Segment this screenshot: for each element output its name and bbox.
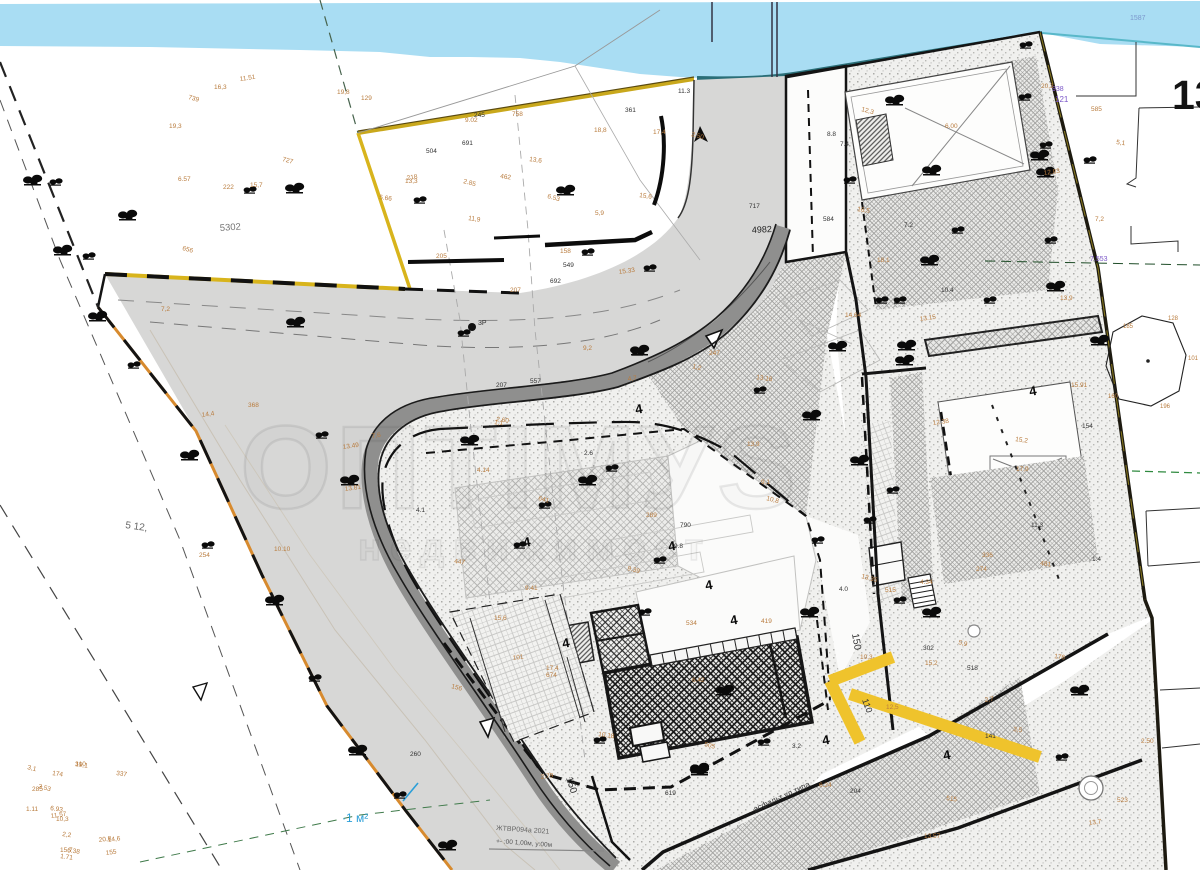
svg-text:101: 101 xyxy=(1188,356,1199,362)
svg-text:254: 254 xyxy=(199,552,210,559)
svg-text:1.4: 1.4 xyxy=(1092,556,1101,563)
svg-text:15,7: 15,7 xyxy=(250,182,263,189)
svg-text:4.14: 4.14 xyxy=(477,467,490,474)
svg-text:13,9: 13,9 xyxy=(1060,295,1073,302)
svg-text:5,1: 5,1 xyxy=(1116,139,1126,147)
svg-text:ОПТІМУЅ: ОПТІМУЅ xyxy=(240,402,800,534)
svg-text:160: 160 xyxy=(1108,394,1119,400)
svg-text:518: 518 xyxy=(967,665,978,672)
svg-text:549: 549 xyxy=(563,262,574,269)
svg-text:17,4: 17,4 xyxy=(653,129,666,136)
svg-text:15,6: 15,6 xyxy=(494,615,507,622)
svg-text:9,1: 9,1 xyxy=(761,479,770,486)
svg-text:128: 128 xyxy=(1168,316,1179,322)
svg-text:419: 419 xyxy=(761,618,772,625)
svg-text:310: 310 xyxy=(75,761,86,768)
svg-text:274: 274 xyxy=(976,566,987,573)
svg-text:1.11: 1.11 xyxy=(26,806,39,813)
svg-text:3.2: 3.2 xyxy=(792,743,801,750)
svg-text:8.8: 8.8 xyxy=(827,131,836,138)
svg-text:13.57: 13.57 xyxy=(924,833,941,840)
svg-text:7.2: 7.2 xyxy=(904,222,913,229)
svg-text:18,8: 18,8 xyxy=(594,127,607,134)
svg-text:15,7: 15,7 xyxy=(60,847,73,854)
svg-text:7,2: 7,2 xyxy=(1095,216,1104,223)
svg-text:504: 504 xyxy=(426,148,437,155)
svg-text:674: 674 xyxy=(546,672,557,679)
svg-text:2.6: 2.6 xyxy=(584,450,593,457)
svg-text:141: 141 xyxy=(985,733,996,740)
svg-text:9.41: 9.41 xyxy=(525,585,538,592)
svg-text:4.0: 4.0 xyxy=(839,586,848,593)
svg-text:129: 129 xyxy=(361,95,372,102)
svg-text:3P: 3P xyxy=(478,320,487,327)
svg-text:17,4: 17,4 xyxy=(546,665,559,672)
svg-text:207: 207 xyxy=(510,287,521,294)
svg-text:185: 185 xyxy=(1123,324,1134,330)
svg-text:361: 361 xyxy=(625,107,636,114)
svg-text:10.10: 10.10 xyxy=(274,546,291,553)
svg-text:205: 205 xyxy=(436,253,447,260)
svg-text:154: 154 xyxy=(1082,423,1093,430)
svg-text:7.553: 7.553 xyxy=(1090,256,1108,263)
svg-text:6.57: 6.57 xyxy=(178,176,191,183)
svg-text:692: 692 xyxy=(550,278,561,285)
svg-text:12,5: 12,5 xyxy=(886,704,899,711)
svg-text:15,2: 15,2 xyxy=(925,660,938,667)
svg-text:4982: 4982 xyxy=(752,224,773,235)
svg-text:534: 534 xyxy=(686,620,697,627)
svg-text:9.8: 9.8 xyxy=(674,543,683,550)
svg-text:758: 758 xyxy=(512,111,523,118)
svg-text:5,9: 5,9 xyxy=(595,210,604,217)
svg-text:302: 302 xyxy=(923,645,934,652)
svg-text:691: 691 xyxy=(462,140,473,147)
svg-text:13: 13 xyxy=(1172,72,1200,118)
svg-text:336: 336 xyxy=(982,552,993,559)
svg-text:790: 790 xyxy=(680,522,691,529)
svg-text:11.3: 11.3 xyxy=(1031,522,1044,529)
svg-text:13,9: 13,9 xyxy=(747,441,760,448)
svg-text:2.50: 2.50 xyxy=(1141,738,1154,745)
svg-text:11.3: 11.3 xyxy=(678,88,691,95)
svg-text:121: 121 xyxy=(1055,95,1069,104)
svg-text:6.42: 6.42 xyxy=(692,677,705,684)
svg-text:4.34: 4.34 xyxy=(920,579,933,586)
svg-text:19,8: 19,8 xyxy=(337,89,350,96)
svg-text:19,3: 19,3 xyxy=(169,123,182,130)
svg-text:6.24: 6.24 xyxy=(819,782,832,789)
svg-text:260: 260 xyxy=(410,751,421,758)
svg-text:619: 619 xyxy=(665,790,676,797)
svg-text:245: 245 xyxy=(474,112,485,119)
svg-text:207: 207 xyxy=(496,382,507,389)
svg-text:938: 938 xyxy=(1052,86,1064,93)
svg-text:10,3: 10,3 xyxy=(860,654,873,661)
svg-text:515: 515 xyxy=(885,587,896,594)
svg-text:15.91: 15.91 xyxy=(1071,382,1088,389)
svg-text:585: 585 xyxy=(1091,106,1102,113)
svg-text:204: 204 xyxy=(850,788,861,795)
svg-text:10,3: 10,3 xyxy=(56,816,69,823)
svg-text:16,3: 16,3 xyxy=(214,84,227,91)
svg-text:1587: 1587 xyxy=(1130,15,1146,22)
svg-text:584: 584 xyxy=(823,216,834,223)
svg-text:9,2: 9,2 xyxy=(583,345,592,352)
svg-text:247: 247 xyxy=(709,350,720,357)
svg-text:20,3: 20,3 xyxy=(1041,83,1054,90)
svg-text:289: 289 xyxy=(646,512,657,519)
svg-text:4,7: 4,7 xyxy=(627,375,637,383)
svg-text:6.00: 6.00 xyxy=(945,123,958,130)
svg-text:5302: 5302 xyxy=(219,222,241,234)
svg-text:523: 523 xyxy=(1117,797,1128,804)
svg-text:368: 368 xyxy=(248,402,259,409)
svg-text:10.4: 10.4 xyxy=(941,287,954,294)
svg-text:·1 м²: ·1 м² xyxy=(342,811,368,825)
svg-text:196: 196 xyxy=(1160,404,1171,410)
svg-text:158: 158 xyxy=(560,248,571,255)
svg-text:2,2: 2,2 xyxy=(62,831,72,839)
svg-text:3,5: 3,5 xyxy=(1013,726,1023,734)
svg-text:7,2: 7,2 xyxy=(161,306,170,313)
svg-text:2,7: 2,7 xyxy=(984,696,994,704)
svg-text:222: 222 xyxy=(223,184,234,191)
svg-text:17,9: 17,9 xyxy=(1016,466,1029,473)
svg-text:557: 557 xyxy=(530,378,541,385)
svg-text:18,1: 18,1 xyxy=(877,257,890,264)
svg-text:7.4: 7.4 xyxy=(840,141,849,148)
svg-text:14.64: 14.64 xyxy=(845,312,862,319)
svg-text:4.1: 4.1 xyxy=(416,507,425,514)
svg-text:7,6: 7,6 xyxy=(371,432,381,440)
svg-text:717: 717 xyxy=(749,203,760,210)
